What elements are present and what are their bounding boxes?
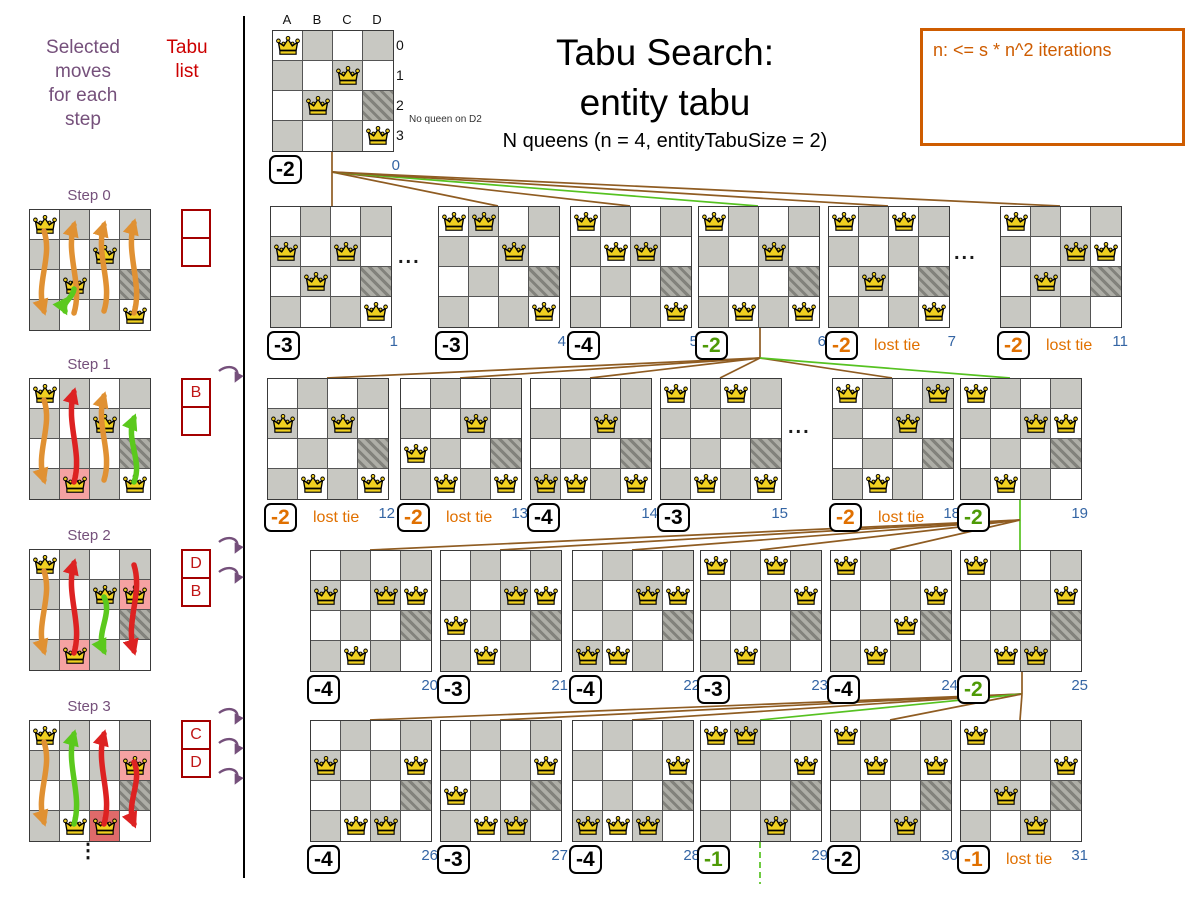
- queen-icon: [1033, 271, 1059, 293]
- board-cell-B1: [603, 751, 633, 781]
- queen-icon: [403, 585, 429, 607]
- queen-icon: [791, 301, 817, 323]
- board-index: 30: [830, 847, 958, 864]
- board-cell-A1: [441, 581, 471, 611]
- candidate-board-26: [310, 720, 432, 842]
- board-cell-A2: [311, 611, 341, 641]
- board-cell-A1: [701, 581, 731, 611]
- tabu-box-0-1: [181, 237, 211, 267]
- board-cell-B0: [1031, 207, 1061, 237]
- queen-icon: [32, 383, 58, 405]
- board-cell-C1: [501, 751, 531, 781]
- board-cell-B2: [603, 611, 633, 641]
- board-cell-B0: [859, 207, 889, 237]
- board-cell-B2: [60, 270, 90, 300]
- queen-icon: [993, 785, 1019, 807]
- queen-icon: [635, 815, 661, 837]
- board-cell-D0: [663, 721, 693, 751]
- board-cell-D1: [363, 61, 393, 91]
- lost-tie-label: lost tie: [1046, 337, 1092, 355]
- candidate-board-12: [267, 378, 389, 500]
- board-cell-D3: [1051, 641, 1081, 671]
- board-cell-D1: [751, 409, 781, 439]
- board-cell-A1: [311, 581, 341, 611]
- board-cell-A3: [311, 641, 341, 671]
- lost-tie-label: lost tie: [878, 509, 924, 527]
- board-cell-B3: [60, 469, 90, 499]
- board-cell-C1: [371, 581, 401, 611]
- board-cell-A1: [961, 751, 991, 781]
- board-cell-D2: [621, 439, 651, 469]
- board-cell-D2: [919, 267, 949, 297]
- board-cell-C0: [633, 551, 663, 581]
- step-board-0: [29, 209, 151, 331]
- start-board: [272, 30, 394, 152]
- candidate-board-4: [438, 206, 560, 328]
- board-cell-C1: [893, 409, 923, 439]
- queen-icon: [993, 645, 1019, 667]
- board-cell-C3: [893, 469, 923, 499]
- board-cell-C0: [90, 550, 120, 580]
- board-cell-C2: [499, 267, 529, 297]
- candidate-board-30: [830, 720, 952, 842]
- board-cell-D0: [120, 721, 150, 751]
- queen-icon: [1053, 755, 1079, 777]
- board-cell-D1: [791, 581, 821, 611]
- board-cell-C0: [328, 379, 358, 409]
- board-cell-A3: [1001, 297, 1031, 327]
- board-cell-D1: [791, 751, 821, 781]
- queen-icon: [122, 304, 148, 326]
- board-cell-C2: [1021, 611, 1051, 641]
- queen-icon: [1053, 585, 1079, 607]
- tree-edge: [332, 172, 630, 206]
- board-cell-B3: [301, 297, 331, 327]
- board-cell-D0: [1091, 207, 1121, 237]
- candidate-board-20: [310, 550, 432, 672]
- board-cell-A2: [273, 91, 303, 121]
- queen-icon: [923, 585, 949, 607]
- board-cell-B2: [601, 267, 631, 297]
- board-cell-A3: [401, 469, 431, 499]
- board-cell-B1: [471, 751, 501, 781]
- board-cell-A0: [661, 379, 691, 409]
- board-cell-C2: [891, 611, 921, 641]
- board-cell-C3: [759, 297, 789, 327]
- candidate-board-27: [440, 720, 562, 842]
- board-cell-A1: [701, 751, 731, 781]
- board-index: 25: [960, 677, 1088, 694]
- queen-icon: [531, 301, 557, 323]
- board-index: 5: [570, 333, 698, 350]
- board-cell-B0: [731, 551, 761, 581]
- board-cell-A2: [701, 611, 731, 641]
- candidate-board-14: [530, 378, 652, 500]
- board-cell-C0: [501, 551, 531, 581]
- board-cell-B2: [861, 781, 891, 811]
- board-cell-C1: [761, 751, 791, 781]
- board-cell-A2: [961, 439, 991, 469]
- board-cell-C0: [891, 551, 921, 581]
- queen-icon: [122, 473, 148, 495]
- board-cell-C3: [90, 640, 120, 670]
- candidate-board-24: [830, 550, 952, 672]
- board-cell-B3: [691, 469, 721, 499]
- candidate-board-6: [698, 206, 820, 328]
- queen-icon: [665, 585, 691, 607]
- board-cell-B1: [991, 751, 1021, 781]
- board-cell-A0: [573, 551, 603, 581]
- queen-icon: [861, 271, 887, 293]
- board-cell-D2: [401, 611, 431, 641]
- board-cell-C1: [328, 409, 358, 439]
- board-cell-B3: [303, 121, 333, 151]
- board-cell-D0: [531, 721, 561, 751]
- board-cell-A2: [833, 439, 863, 469]
- candidate-board-22: [572, 550, 694, 672]
- queen-icon: [443, 785, 469, 807]
- queen-icon: [665, 755, 691, 777]
- board-cell-A1: [268, 409, 298, 439]
- board-cell-A0: [531, 379, 561, 409]
- queen-icon: [343, 645, 369, 667]
- board-cell-B3: [731, 641, 761, 671]
- board-cell-A2: [268, 439, 298, 469]
- board-cell-B2: [471, 781, 501, 811]
- board-cell-A0: [30, 550, 60, 580]
- board-cell-B1: [60, 580, 90, 610]
- board-cell-B3: [1031, 297, 1061, 327]
- board-cell-D2: [1051, 611, 1081, 641]
- board-cell-B1: [731, 581, 761, 611]
- board-cell-B0: [603, 551, 633, 581]
- board-cell-C2: [461, 439, 491, 469]
- board-cell-C1: [889, 237, 919, 267]
- board-cell-D0: [919, 207, 949, 237]
- board-cell-D1: [120, 409, 150, 439]
- board-cell-C1: [1021, 581, 1051, 611]
- board-cell-C0: [759, 207, 789, 237]
- queen-icon: [623, 473, 649, 495]
- board-cell-C3: [328, 469, 358, 499]
- board-cell-D3: [923, 469, 953, 499]
- queen-icon: [863, 755, 889, 777]
- board-index: 20: [310, 677, 438, 694]
- queen-icon: [92, 244, 118, 266]
- board-cell-A2: [441, 611, 471, 641]
- board-cell-A3: [441, 811, 471, 841]
- candidate-board-23: [700, 550, 822, 672]
- board-cell-B1: [861, 751, 891, 781]
- board-cell-C3: [633, 641, 663, 671]
- board-cell-D1: [401, 581, 431, 611]
- board-cell-D2: [663, 781, 693, 811]
- board-cell-A3: [531, 469, 561, 499]
- queen-icon: [92, 815, 118, 837]
- row-label: 0: [396, 30, 404, 60]
- board-cell-C1: [721, 409, 751, 439]
- board-cell-C2: [759, 267, 789, 297]
- board-cell-B3: [731, 811, 761, 841]
- board-cell-C0: [889, 207, 919, 237]
- board-cell-A2: [30, 439, 60, 469]
- queen-icon: [62, 815, 88, 837]
- row2-ellipsis: ...: [788, 416, 811, 439]
- board-cell-C1: [1021, 751, 1051, 781]
- board-cell-A2: [30, 610, 60, 640]
- board-cell-D3: [663, 641, 693, 671]
- candidate-board-31: [960, 720, 1082, 842]
- queen-icon: [833, 725, 859, 747]
- board-cell-C0: [1021, 721, 1051, 751]
- board-cell-B0: [603, 721, 633, 751]
- board-cell-B3: [60, 300, 90, 330]
- board-cell-B0: [863, 379, 893, 409]
- board-cell-A0: [311, 551, 341, 581]
- board-cell-C1: [501, 581, 531, 611]
- board-cell-D2: [529, 267, 559, 297]
- board-cell-B3: [863, 469, 893, 499]
- board-cell-C3: [90, 811, 120, 841]
- queen-icon: [473, 645, 499, 667]
- board-cell-A3: [701, 811, 731, 841]
- tabu-list-label: Tabu list: [146, 36, 228, 84]
- queen-icon: [503, 585, 529, 607]
- board-index: 28: [572, 847, 700, 864]
- board-cell-B2: [561, 439, 591, 469]
- board-cell-D2: [1051, 439, 1081, 469]
- board-cell-A1: [833, 409, 863, 439]
- board-cell-C2: [1021, 439, 1051, 469]
- board-cell-A1: [531, 409, 561, 439]
- board-cell-B2: [60, 781, 90, 811]
- board-cell-A2: [831, 611, 861, 641]
- board-cell-A0: [30, 721, 60, 751]
- board-cell-D2: [921, 781, 951, 811]
- board-cell-A3: [699, 297, 729, 327]
- tree-edge: [500, 520, 1020, 550]
- queen-icon: [833, 555, 859, 577]
- board-cell-C0: [1021, 551, 1051, 581]
- board-cell-D1: [663, 751, 693, 781]
- board-cell-A1: [573, 581, 603, 611]
- queen-icon: [603, 241, 629, 263]
- board-cell-A2: [271, 267, 301, 297]
- board-cell-C0: [331, 207, 361, 237]
- queen-icon: [921, 301, 947, 323]
- board-cell-C0: [90, 210, 120, 240]
- board-cell-C2: [891, 781, 921, 811]
- board-cell-C3: [461, 469, 491, 499]
- board-cell-B0: [861, 551, 891, 581]
- board-cell-D2: [663, 611, 693, 641]
- board-cell-D3: [120, 300, 150, 330]
- board-cell-A2: [699, 267, 729, 297]
- queen-icon: [693, 473, 719, 495]
- board-cell-B2: [991, 439, 1021, 469]
- board-cell-D2: [491, 439, 521, 469]
- board-cell-B0: [301, 207, 331, 237]
- board-cell-B3: [603, 641, 633, 671]
- board-cell-D0: [921, 551, 951, 581]
- board-cell-C0: [891, 721, 921, 751]
- board-cell-D2: [401, 781, 431, 811]
- candidate-board-18: [832, 378, 954, 500]
- tabu-box-3-0: C: [181, 720, 211, 750]
- board-cell-D2: [120, 270, 150, 300]
- board-cell-C2: [761, 611, 791, 641]
- board-cell-A0: [961, 379, 991, 409]
- board-cell-B0: [691, 379, 721, 409]
- step-label-3: Step 3: [29, 698, 149, 715]
- board-cell-C2: [591, 439, 621, 469]
- board-cell-C1: [891, 751, 921, 781]
- board-cell-D1: [661, 237, 691, 267]
- board-index: 22: [572, 677, 700, 694]
- board-cell-D0: [401, 551, 431, 581]
- queen-icon: [575, 815, 601, 837]
- board-cell-C2: [333, 91, 363, 121]
- queen-icon: [471, 211, 497, 233]
- queen-icon: [273, 241, 299, 263]
- queen-icon: [313, 755, 339, 777]
- board-cell-C2: [633, 611, 663, 641]
- board-cell-C3: [891, 641, 921, 671]
- queen-icon: [443, 615, 469, 637]
- board-cell-C0: [461, 379, 491, 409]
- queen-icon: [923, 755, 949, 777]
- board-cell-C3: [499, 297, 529, 327]
- queen-icon: [763, 555, 789, 577]
- board-cell-B0: [991, 721, 1021, 751]
- board-cell-D3: [120, 469, 150, 499]
- board-cell-D1: [120, 240, 150, 270]
- board-cell-D0: [791, 721, 821, 751]
- board-cell-A0: [271, 207, 301, 237]
- board-cell-D2: [120, 781, 150, 811]
- queen-icon: [92, 584, 118, 606]
- board-cell-D0: [361, 207, 391, 237]
- board-cell-A3: [439, 297, 469, 327]
- board-cell-B1: [603, 581, 633, 611]
- board-cell-C1: [90, 751, 120, 781]
- board-cell-D2: [921, 611, 951, 641]
- board-cell-A0: [961, 551, 991, 581]
- board-cell-A3: [268, 469, 298, 499]
- board-cell-C3: [1021, 811, 1051, 841]
- tabu-box-2-1: B: [181, 577, 211, 607]
- board-cell-B0: [60, 379, 90, 409]
- board-cell-D1: [789, 237, 819, 267]
- board-cell-D1: [120, 751, 150, 781]
- board-cell-C3: [1021, 641, 1051, 671]
- queen-icon: [363, 301, 389, 323]
- board-cell-D3: [791, 641, 821, 671]
- board-cell-A0: [701, 721, 731, 751]
- queen-icon: [32, 214, 58, 236]
- board-cell-A3: [441, 641, 471, 671]
- board-cell-D0: [1051, 379, 1081, 409]
- queen-icon: [305, 95, 331, 117]
- board-cell-A3: [961, 469, 991, 499]
- board-cell-C0: [501, 721, 531, 751]
- board-cell-C1: [461, 409, 491, 439]
- queen-icon: [62, 473, 88, 495]
- queen-icon: [275, 35, 301, 57]
- board-cell-D3: [363, 121, 393, 151]
- board-cell-C3: [90, 469, 120, 499]
- board-cell-B2: [298, 439, 328, 469]
- board-cell-D1: [621, 409, 651, 439]
- board-cell-A3: [311, 811, 341, 841]
- queen-icon: [963, 555, 989, 577]
- board-cell-A1: [1001, 237, 1031, 267]
- board-cell-B0: [60, 721, 90, 751]
- board-cell-B2: [731, 611, 761, 641]
- queen-icon: [493, 473, 519, 495]
- board-cell-C2: [889, 267, 919, 297]
- queen-icon: [1063, 241, 1089, 263]
- board-cell-A3: [273, 121, 303, 151]
- board-cell-B2: [729, 267, 759, 297]
- board-cell-B2: [861, 611, 891, 641]
- board-cell-B1: [60, 409, 90, 439]
- board-cell-A2: [961, 611, 991, 641]
- board-cell-D2: [751, 439, 781, 469]
- board-cell-A0: [961, 721, 991, 751]
- board-cell-D1: [531, 581, 561, 611]
- board-cell-C3: [1061, 297, 1091, 327]
- board-cell-A3: [961, 811, 991, 841]
- board-cell-B3: [469, 297, 499, 327]
- board-cell-C3: [90, 300, 120, 330]
- candidate-board-21: [440, 550, 562, 672]
- candidate-board-28: [572, 720, 694, 842]
- board-cell-C0: [631, 207, 661, 237]
- board-cell-B2: [471, 611, 501, 641]
- board-cell-C3: [331, 297, 361, 327]
- board-cell-D0: [120, 379, 150, 409]
- page-subtitle: N queens (n = 4, entityTabuSize = 2): [430, 130, 900, 153]
- board-cell-C1: [633, 581, 663, 611]
- queen-icon: [1023, 413, 1049, 435]
- board-cell-C1: [90, 580, 120, 610]
- start-board-column-labels: ABCD: [272, 12, 392, 27]
- board-cell-C2: [371, 781, 401, 811]
- board-cell-C2: [501, 611, 531, 641]
- queen-icon: [793, 755, 819, 777]
- board-index: 21: [440, 677, 568, 694]
- board-cell-B2: [991, 781, 1021, 811]
- board-cell-C2: [331, 267, 361, 297]
- board-cell-D1: [919, 237, 949, 267]
- board-cell-C0: [761, 721, 791, 751]
- board-cell-A1: [311, 751, 341, 781]
- board-cell-C0: [371, 551, 401, 581]
- board-cell-C1: [499, 237, 529, 267]
- board-cell-A1: [439, 237, 469, 267]
- step-label-2: Step 2: [29, 527, 149, 544]
- board-cell-A0: [30, 379, 60, 409]
- board-cell-A2: [401, 439, 431, 469]
- queen-icon: [122, 584, 148, 606]
- board-cell-B2: [303, 91, 333, 121]
- board-cell-C3: [761, 641, 791, 671]
- queen-icon: [575, 645, 601, 667]
- queen-icon: [343, 815, 369, 837]
- board-cell-C0: [90, 379, 120, 409]
- board-cell-C2: [721, 439, 751, 469]
